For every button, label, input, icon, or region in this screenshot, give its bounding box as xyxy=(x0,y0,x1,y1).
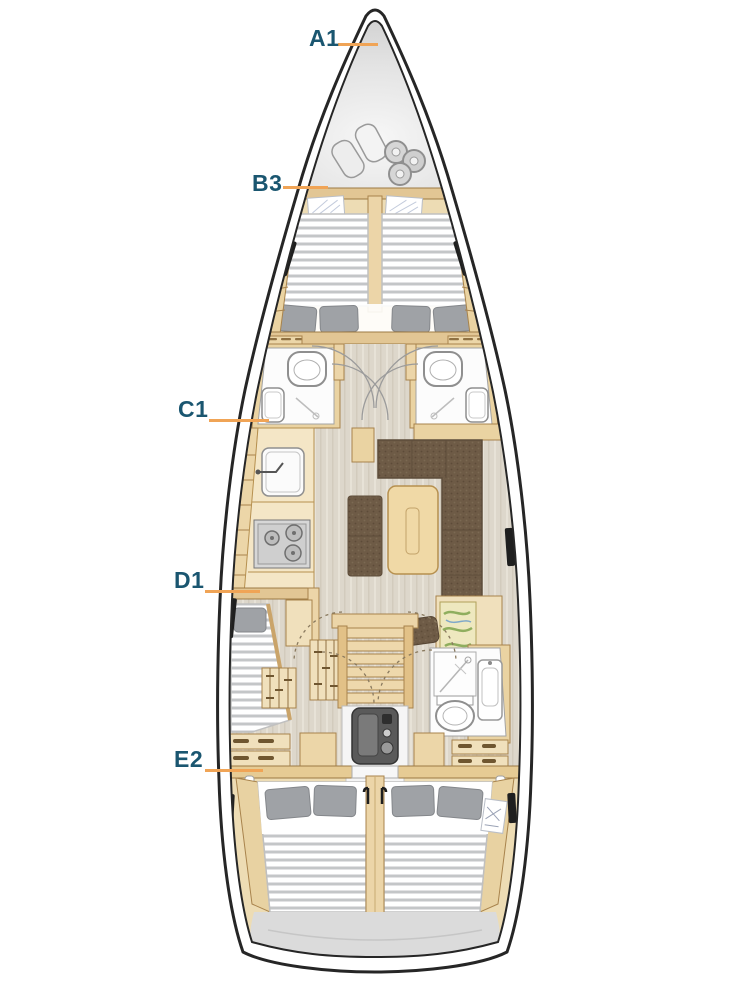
engine xyxy=(352,708,398,764)
label-a1-leader xyxy=(338,43,378,46)
pillow-single xyxy=(234,608,266,632)
label-a1: A1 xyxy=(309,27,339,50)
yacht-layout-diagram: A1 B3 C1 D1 E2 xyxy=(0,0,750,1000)
label-d1-leader xyxy=(205,590,260,593)
label-b3: B3 xyxy=(252,172,282,195)
anchor-locker xyxy=(230,0,520,193)
sink-aft xyxy=(478,660,502,720)
toilet-aft xyxy=(436,696,474,731)
label-e2: E2 xyxy=(174,748,203,771)
label-c1: C1 xyxy=(178,398,208,421)
label-c1-leader xyxy=(209,419,269,422)
wardrobe-port xyxy=(262,668,296,708)
hatch-panel-aft xyxy=(481,799,507,834)
bed-divider xyxy=(368,196,382,312)
label-e2-leader xyxy=(205,769,263,772)
hanging-locker-corridor xyxy=(310,640,342,700)
shower-aft xyxy=(434,652,476,696)
label-b3-leader xyxy=(283,186,328,189)
label-d1: D1 xyxy=(174,569,204,592)
aft-cabins xyxy=(236,776,514,914)
drawers-starboard xyxy=(452,740,508,769)
deck-plan-drawing xyxy=(0,0,750,1000)
stove xyxy=(254,520,310,568)
saloon-table xyxy=(388,486,438,574)
